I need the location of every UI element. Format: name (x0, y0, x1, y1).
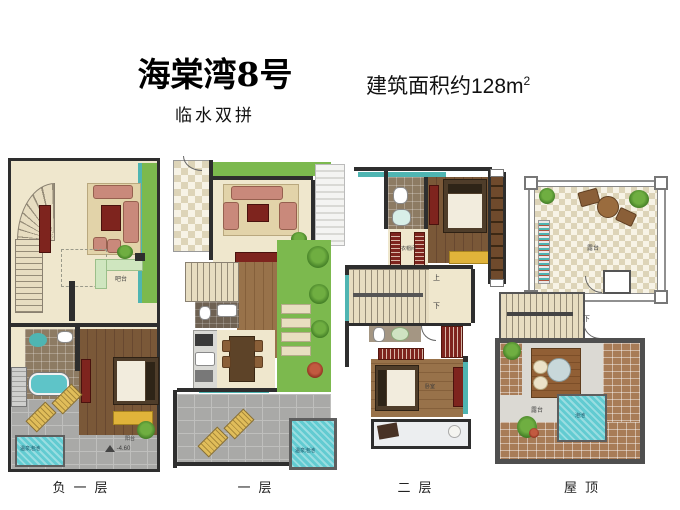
wall-segment (471, 269, 475, 323)
page-subtitle: 临水双拼 (105, 101, 325, 126)
storage-room (11, 367, 27, 407)
deck-chair (533, 360, 548, 374)
stairs-down-label: 下 (433, 303, 440, 310)
toilet (393, 187, 408, 204)
plant (539, 188, 555, 204)
plant (503, 342, 521, 360)
elevation-triangle-icon (105, 445, 115, 452)
dining-chair (254, 356, 263, 368)
garden-step (281, 318, 311, 328)
armchair (223, 202, 239, 230)
balcony-label: 阳台 (125, 437, 135, 442)
potted-plant (629, 190, 649, 208)
wardrobe-rack (441, 326, 463, 358)
door-arc (583, 322, 600, 339)
plan-roof: 露台 下 泡池 露台 (495, 170, 675, 470)
glass-table (547, 358, 571, 382)
wall-segment (177, 388, 277, 392)
plan-roof-label: 屋顶 (495, 477, 675, 496)
striped-lounger (538, 220, 550, 284)
kitchen-appliance (195, 370, 213, 382)
area-superscript: 2 (524, 74, 531, 88)
basin (392, 209, 411, 226)
entry-path (173, 160, 211, 252)
coffee-table (101, 205, 121, 231)
wall-segment (75, 327, 80, 371)
dining-table (229, 336, 255, 382)
spa-pool: 温泉泡池 (15, 435, 65, 467)
cabinet (39, 205, 51, 253)
light-well-garden (142, 163, 157, 303)
stair-railing (507, 312, 573, 316)
bed-mattress (117, 361, 145, 401)
cabinet (81, 359, 91, 403)
toilet (373, 327, 385, 342)
closet-label: 衣帽间 (401, 247, 416, 252)
wall-post (654, 176, 668, 190)
plant (117, 245, 133, 259)
wardrobe-rack (378, 348, 424, 360)
bed-pillow (448, 184, 482, 193)
plan-first-floor-label: 一层 (173, 477, 344, 496)
sofa (231, 186, 283, 200)
plan-basement-label: 负一层 (8, 477, 160, 496)
toilet (199, 306, 211, 320)
plan-first-floor: 温泉泡池 (173, 156, 344, 472)
wall-segment (345, 321, 349, 367)
bush (309, 284, 329, 304)
floorplan-sheet: { "header": { "title": "海棠湾8号", "subtitl… (0, 0, 680, 510)
area-text: 建筑面积约128m (366, 75, 524, 98)
staircase (347, 269, 431, 325)
dining-chair (222, 356, 231, 368)
stair-railing (353, 293, 423, 297)
wall-segment (173, 390, 177, 468)
staircase (185, 262, 239, 302)
page-title: 海棠湾8号 (105, 48, 325, 96)
terrace-label: 露台 (531, 408, 543, 414)
elevation-marker: -4.60 (105, 445, 130, 452)
wall-segment (69, 281, 75, 321)
coffee-table (247, 204, 269, 222)
balcony (371, 419, 471, 449)
sofa (93, 185, 133, 199)
wall-segment (311, 180, 315, 242)
wall-segment (384, 167, 388, 229)
shower (29, 333, 47, 347)
cabinet (429, 185, 439, 225)
spa-pool: 温泉泡池 (289, 418, 337, 470)
window-band (345, 275, 349, 321)
armchair (279, 202, 297, 230)
red-bush (529, 428, 539, 438)
door-arc (421, 326, 436, 341)
basin (391, 327, 409, 341)
bed-pillow (378, 370, 386, 406)
bed (443, 179, 487, 233)
plunge-pool: 泡池 (557, 394, 607, 442)
plant (137, 421, 155, 439)
spa-pool-label: 温泉泡池 (20, 447, 40, 452)
plan-basement: 吧台 温泉泡池 阳台 -4.60 (8, 158, 160, 472)
wall-segment (135, 253, 145, 261)
garden-strip (211, 162, 331, 176)
wall-segment (11, 323, 157, 327)
wall-post (524, 176, 538, 190)
wall-segment (345, 269, 349, 275)
bench (449, 251, 489, 264)
toilet (57, 331, 73, 343)
elevation-value: -4.60 (117, 446, 131, 452)
plan-second-floor-label: 二层 (345, 477, 492, 496)
bedroom-label: 卧室 (425, 385, 435, 390)
bed (113, 357, 159, 405)
garden-step (281, 304, 311, 314)
sofa (123, 201, 139, 243)
wall-segment (354, 167, 489, 171)
bed-mattress (448, 194, 482, 228)
plan-second-floor: 衣帽间 上 下 卧室 (345, 163, 492, 470)
deck-strip (315, 164, 345, 246)
roof-terrace-label: 露台 (587, 246, 599, 252)
kitchen-appliance (195, 334, 213, 346)
wall-post (654, 290, 668, 304)
pool-label: 泡池 (575, 414, 585, 419)
stairs-up-label: 上 (433, 275, 440, 282)
bed-mattress (387, 370, 415, 406)
bar-label: 吧台 (115, 277, 127, 283)
deck-chair (533, 376, 548, 390)
bush (311, 320, 329, 338)
bathtub (217, 304, 237, 317)
red-bush (307, 362, 323, 378)
tree (307, 246, 329, 268)
garden-step (281, 332, 311, 342)
bar-counter (95, 259, 107, 289)
cushions (377, 422, 399, 439)
roof-hatch (603, 270, 631, 294)
dining-chair (222, 340, 231, 352)
spa-pool-label: 温泉泡池 (295, 449, 315, 454)
dining-chair (254, 340, 263, 352)
bed (375, 365, 419, 411)
garden-step (281, 346, 311, 356)
window-band (463, 362, 468, 414)
pouf (448, 425, 461, 438)
bed-pillow (146, 362, 155, 400)
area-note: 建筑面积约128m2 (366, 70, 530, 100)
staircase (499, 292, 585, 342)
kitchen-sink (195, 352, 215, 366)
wardrobe-rack (390, 232, 401, 268)
